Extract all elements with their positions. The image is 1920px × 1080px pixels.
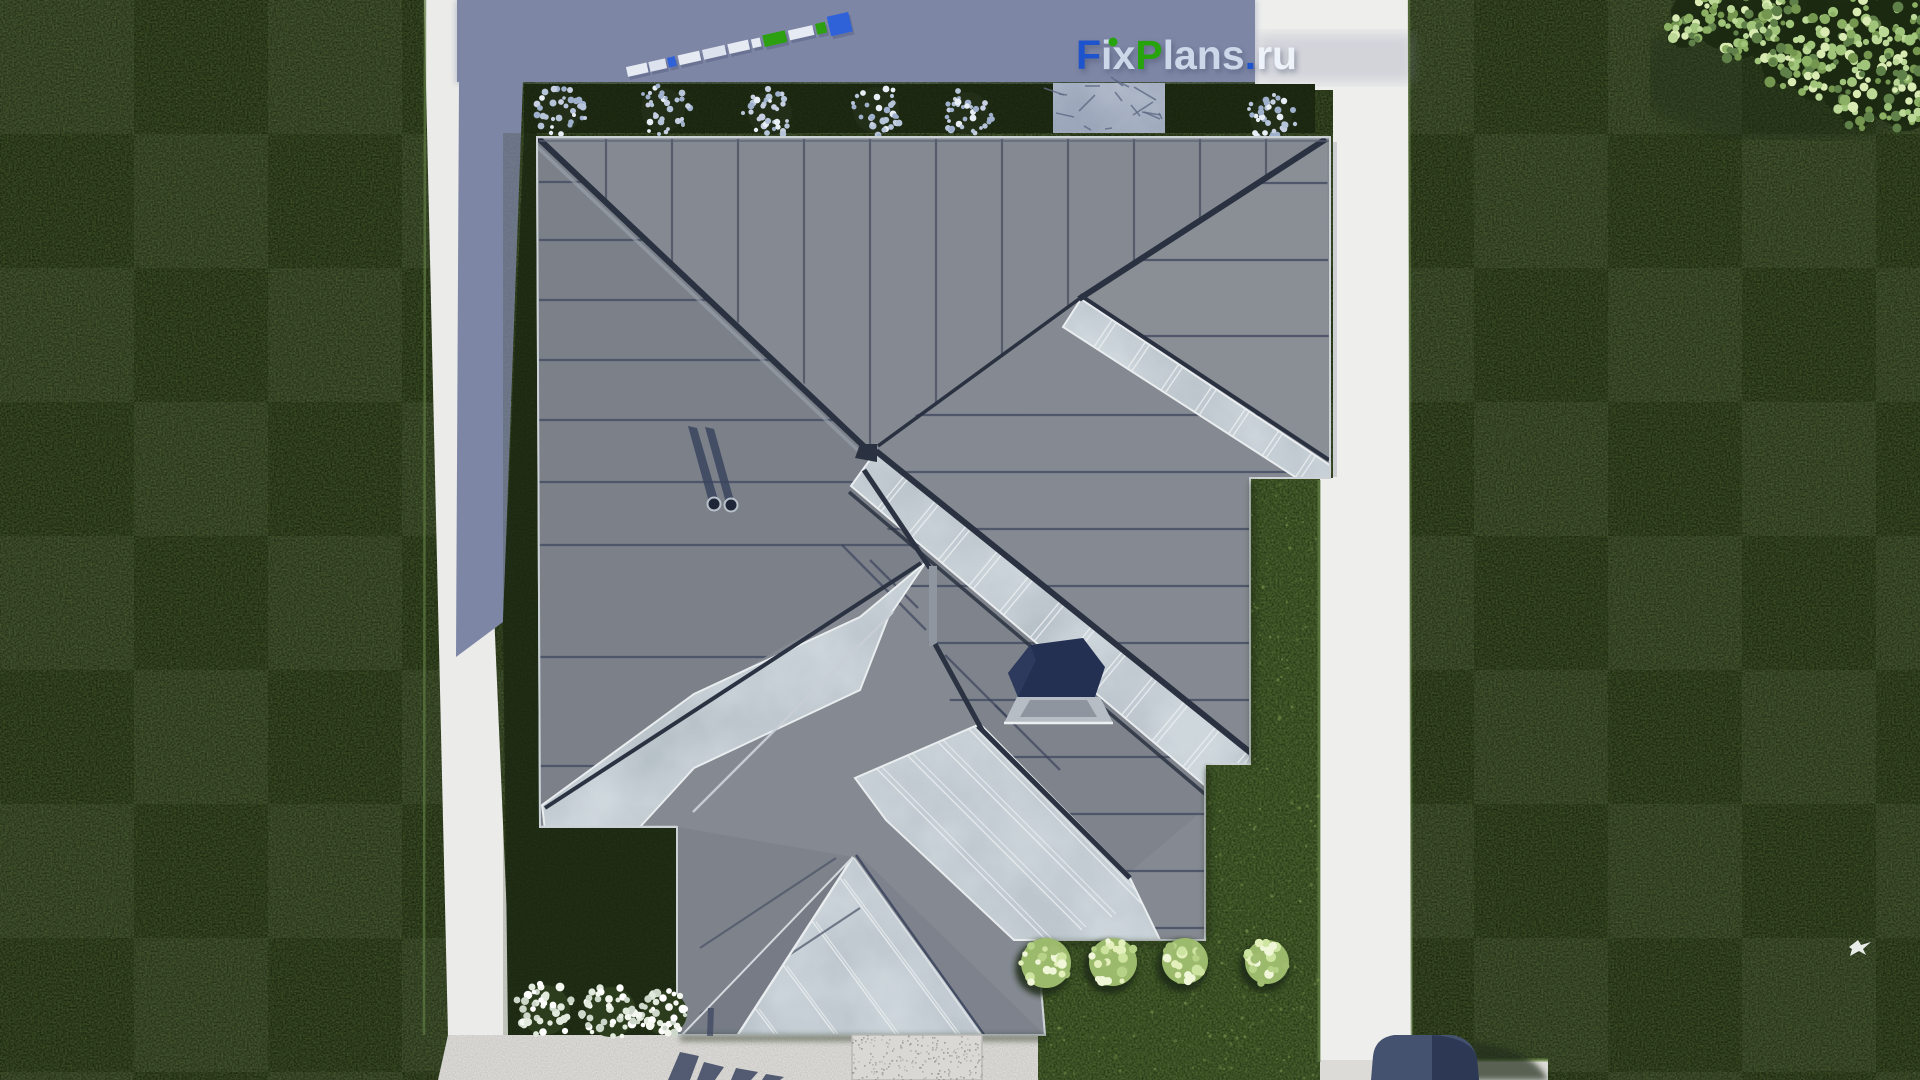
svg-text:FixPlans.ru: FixPlans.ru [1076,32,1297,78]
